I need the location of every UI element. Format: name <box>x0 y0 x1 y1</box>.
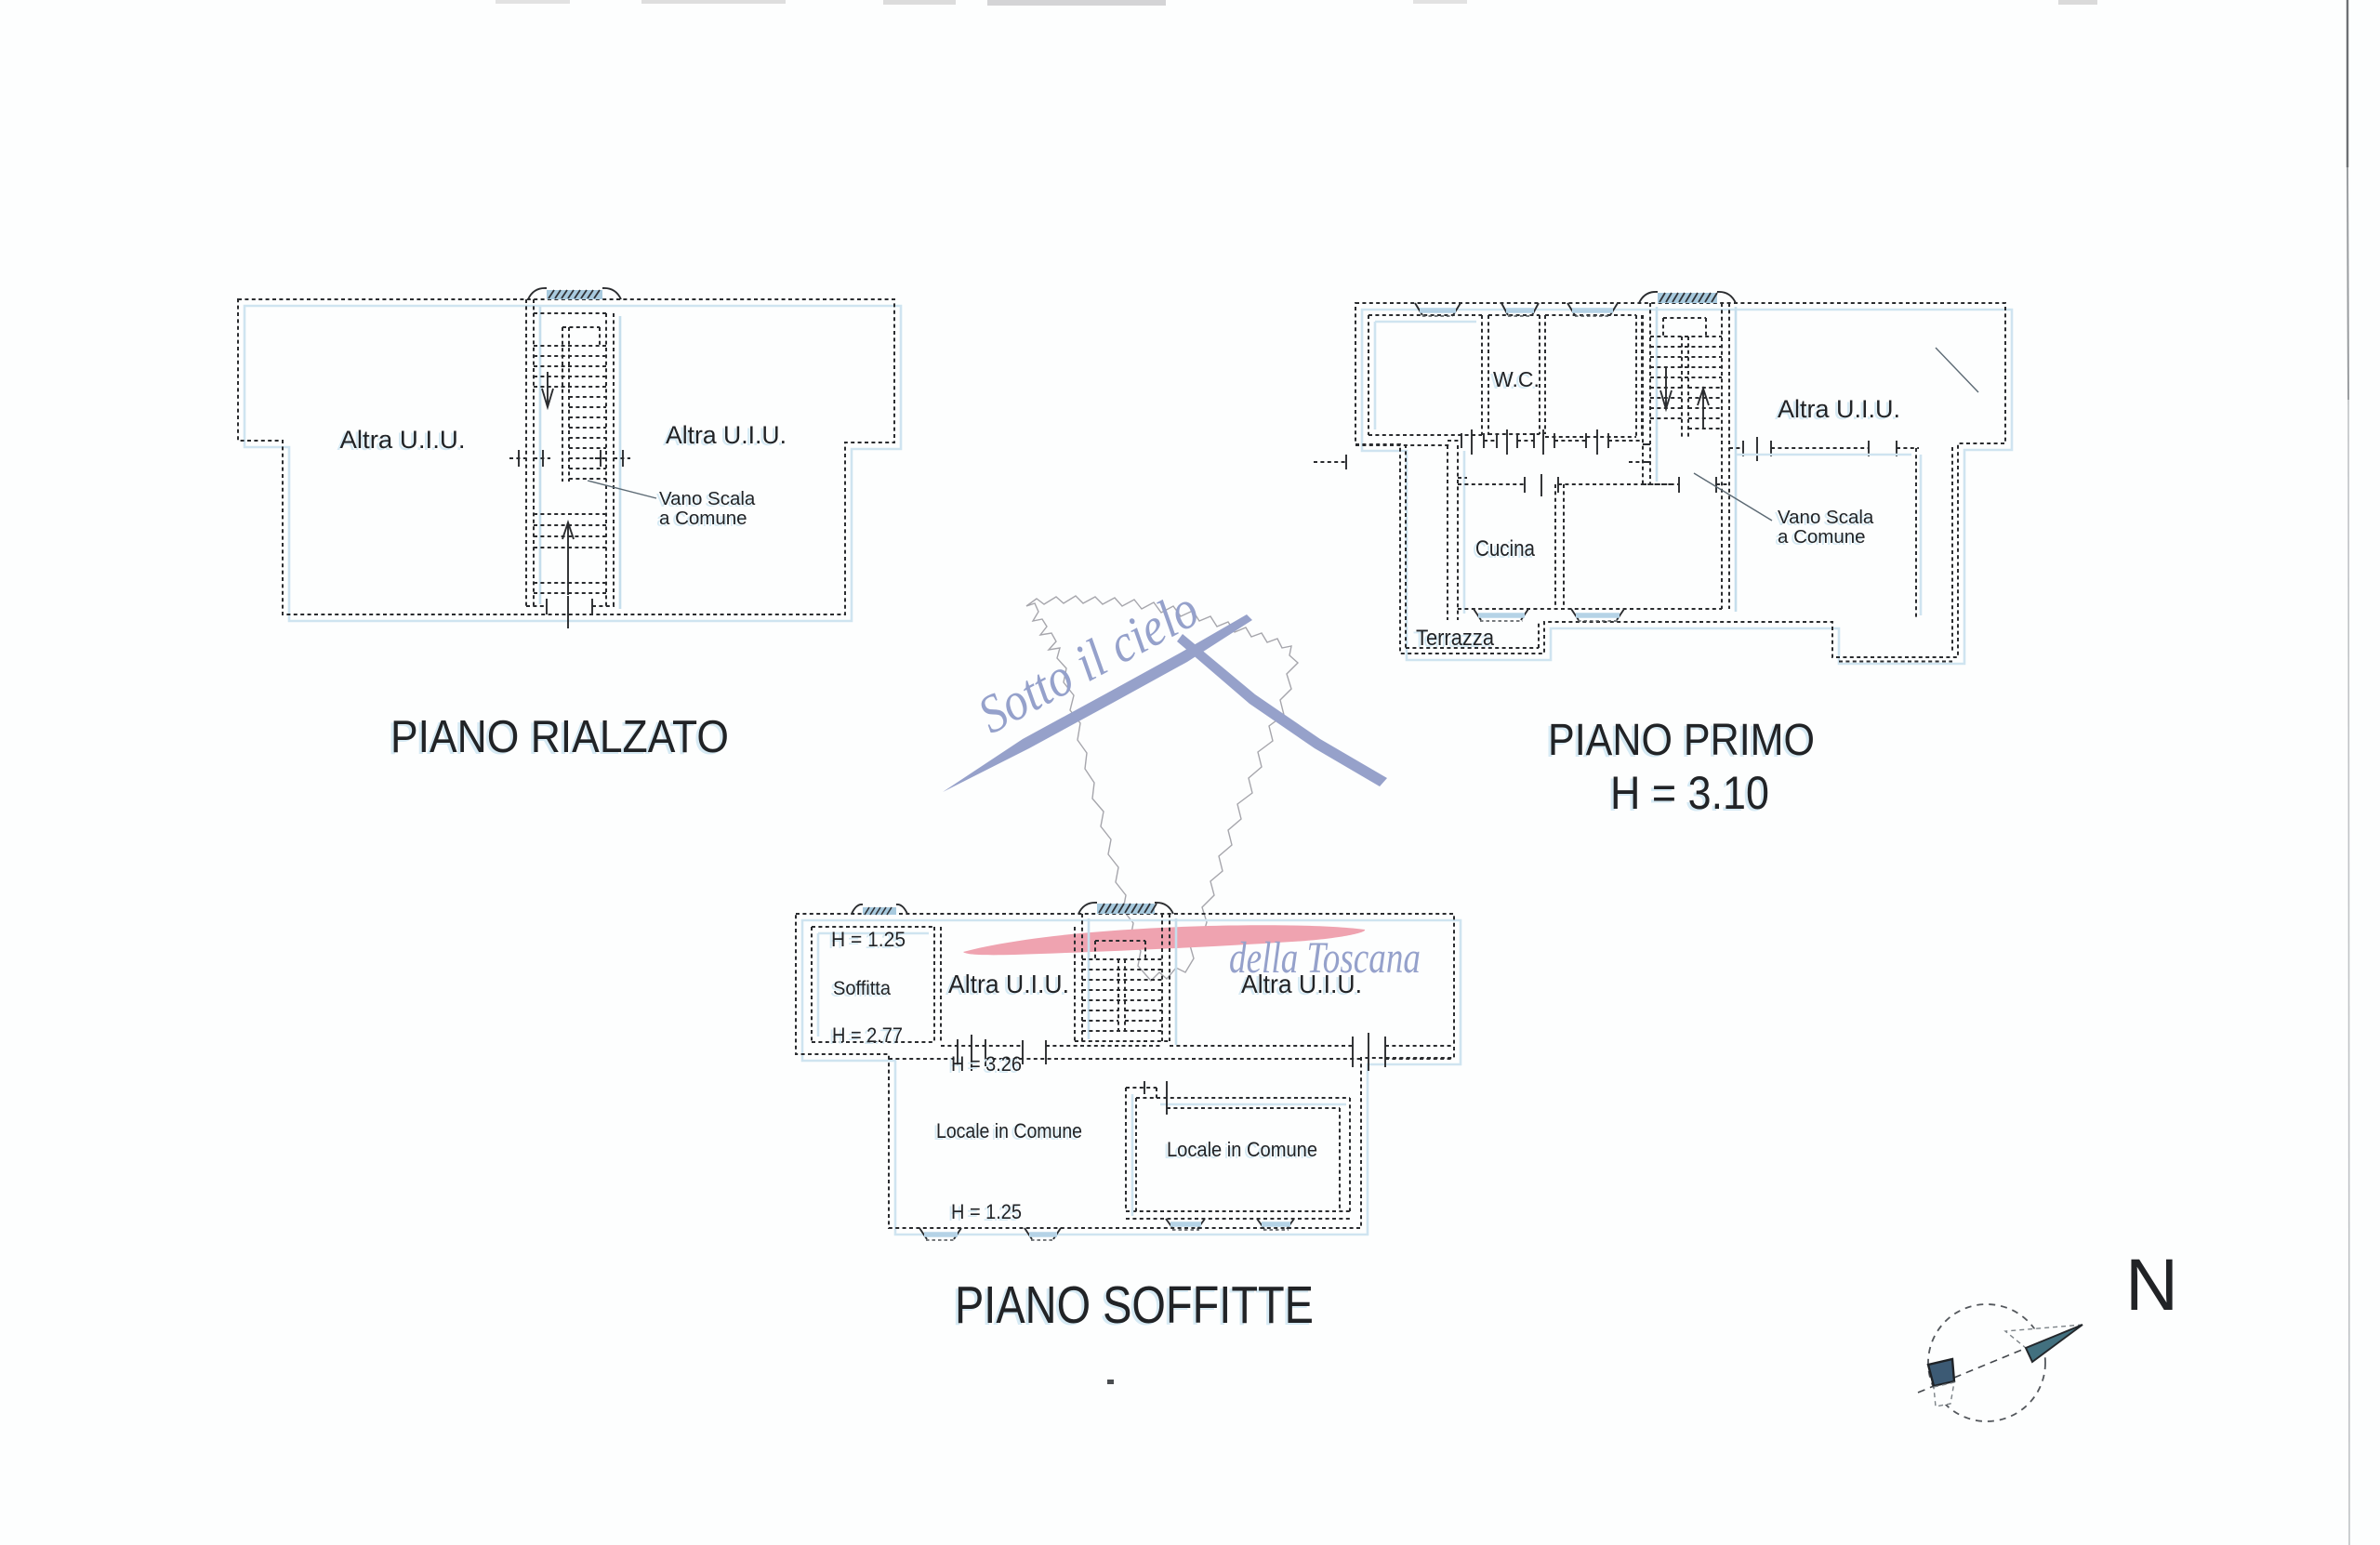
svg-text:Altra U.I.U.: Altra U.I.U. <box>948 970 1069 998</box>
svg-text:Locale in Comune: Locale in Comune <box>1167 1138 1317 1161</box>
svg-text:H = 3.10: H = 3.10 <box>1610 767 1769 819</box>
svg-text:PIANO SOFFITTE: PIANO SOFFITTE <box>955 1275 1314 1335</box>
svg-text:H = 1.25: H = 1.25 <box>951 1200 1022 1223</box>
svg-text:W.C.: W.C. <box>1493 367 1540 391</box>
svg-text:a Comune: a Comune <box>659 508 747 529</box>
svg-text:H = 3.26: H = 3.26 <box>951 1052 1022 1076</box>
svg-text:Vano Scala: Vano Scala <box>1778 507 1874 528</box>
svg-text:PIANO PRIMO: PIANO PRIMO <box>1548 716 1815 765</box>
svg-text:Altra U.I.U.: Altra U.I.U. <box>340 426 466 454</box>
svg-text:Altra U.I.U.: Altra U.I.U. <box>1778 395 1900 423</box>
svg-text:Soffitta: Soffitta <box>833 978 891 999</box>
svg-text:a Comune: a Comune <box>1778 526 1866 548</box>
svg-text:Terrazza: Terrazza <box>1416 626 1495 651</box>
svg-text:Cucina: Cucina <box>1475 536 1536 561</box>
svg-text:N: N <box>2125 1243 2178 1326</box>
svg-text:H = 1.25: H = 1.25 <box>831 928 906 951</box>
svg-text:Vano Scala: Vano Scala <box>659 488 756 509</box>
svg-text:Altra U.I.U.: Altra U.I.U. <box>1241 970 1362 998</box>
svg-text:Locale in Comune: Locale in Comune <box>936 1119 1082 1142</box>
svg-text:PIANO RIALZATO: PIANO RIALZATO <box>390 712 729 762</box>
svg-text:Altra U.I.U.: Altra U.I.U. <box>666 421 787 449</box>
svg-text:H = 2.77: H = 2.77 <box>832 1023 903 1047</box>
